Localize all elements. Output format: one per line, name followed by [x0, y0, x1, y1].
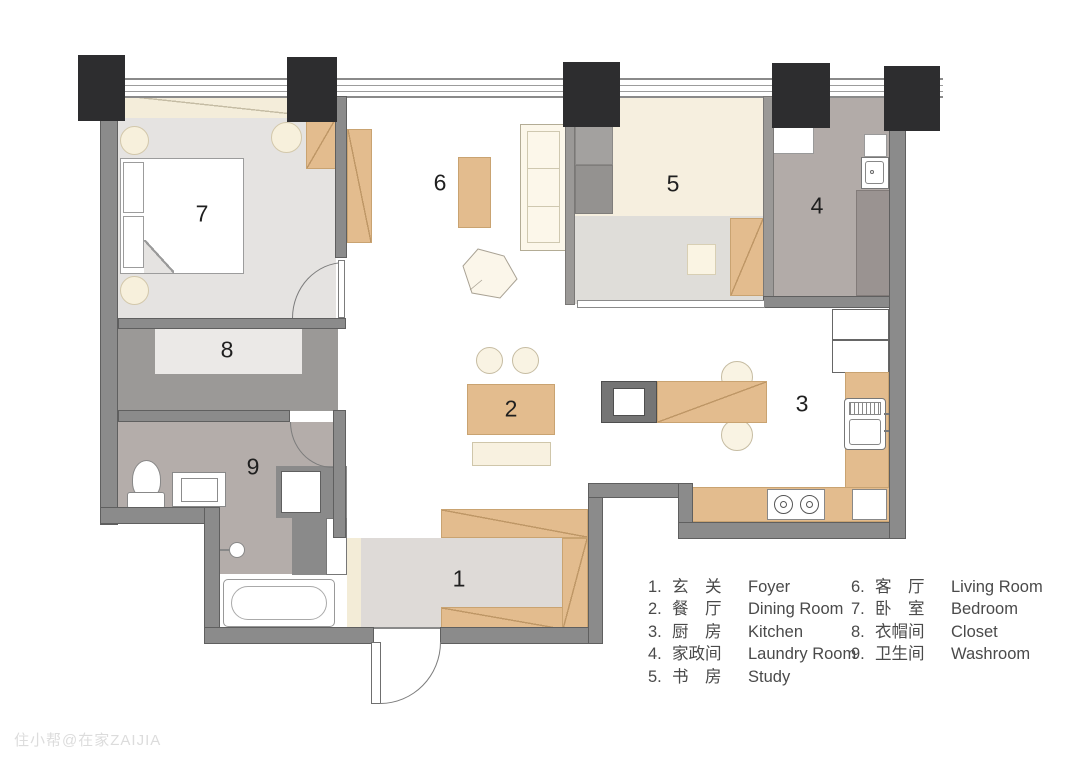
wall-kitchen-bottom [678, 522, 906, 539]
legend-num: 8. [851, 623, 875, 642]
wall-step-left [100, 507, 220, 524]
study-cabinet [575, 165, 613, 214]
legend-num: 9. [851, 645, 875, 664]
legend-zh: 卧 室 [875, 595, 947, 619]
pillow [123, 216, 144, 268]
legend-en: Foyer [748, 578, 790, 597]
legend-row: 1. 玄 关 Foyer [648, 573, 856, 595]
study-desk [730, 218, 764, 296]
wall-left [100, 96, 118, 525]
column [78, 55, 125, 121]
legend-num: 4. [648, 645, 672, 664]
legend-row: 9. 卫生间 Washroom [851, 640, 1043, 662]
wall-bottom-mid [440, 627, 603, 644]
legend-num: 2. [648, 600, 672, 619]
nightstand [120, 126, 149, 155]
laundry-sink [861, 157, 889, 189]
entry-door-arc [380, 642, 441, 704]
floor-plan: 1 2 3 4 5 6 7 8 9 1. 玄 关 Foyer 2. 餐 厅 Di… [0, 0, 1080, 763]
legend-num: 3. [648, 623, 672, 642]
foyer-cabinet-top [441, 509, 588, 538]
laundry-cabinet [856, 190, 890, 296]
wall-bedroom-closet [118, 318, 346, 329]
kitchen-island [657, 381, 767, 423]
legend-zh: 餐 厅 [672, 595, 744, 619]
wall-bottom-left [204, 627, 374, 644]
legend-en: Kitchen [748, 623, 803, 642]
legend-column-left: 1. 玄 关 Foyer 2. 餐 厅 Dining Room 3. 厨 房 K… [648, 573, 856, 685]
room-label-bedroom: 7 [196, 201, 209, 228]
legend-zh: 卫生间 [875, 640, 947, 664]
bedroom-wardrobe [306, 117, 337, 169]
column [772, 63, 830, 128]
sofa-divider [527, 168, 560, 169]
pillow [123, 162, 144, 213]
wall-right [889, 127, 906, 539]
room-label-study: 5 [667, 171, 680, 198]
closet-wardrobe [118, 374, 338, 411]
wall-notch-left [588, 497, 603, 644]
island-stool [721, 419, 753, 451]
wall-laundry-kitchen [763, 296, 890, 308]
column [563, 62, 620, 127]
legend-zh: 家政间 [672, 640, 744, 664]
kitchen-sink-basin [849, 419, 881, 445]
legend-num: 7. [851, 600, 875, 619]
legend-en: Living Room [951, 578, 1043, 597]
legend-en: Washroom [951, 645, 1030, 664]
sofa-divider [527, 206, 560, 207]
legend-row: 8. 衣帽间 Closet [851, 618, 1043, 640]
legend-zh: 客 厅 [875, 573, 947, 597]
floor-drain [229, 542, 245, 558]
legend-column-right: 6. 客 厅 Living Room 7. 卧 室 Bedroom 8. 衣帽间… [851, 573, 1043, 663]
legend-en: Dining Room [748, 600, 843, 619]
laundry-appliance [864, 134, 887, 157]
legend-row: 4. 家政间 Laundry Room [648, 640, 856, 662]
bathtub-inner [231, 586, 327, 620]
legend-en: Study [748, 668, 790, 687]
column [884, 66, 940, 131]
room-label-closet: 8 [221, 337, 234, 364]
room-label-dining: 2 [505, 396, 518, 423]
burner [774, 495, 793, 514]
legend-zh: 衣帽间 [875, 618, 947, 642]
burner [800, 495, 819, 514]
room-label-foyer: 1 [453, 566, 466, 593]
wall-washroom-foyer [333, 410, 346, 538]
column [287, 57, 337, 122]
legend-en: Bedroom [951, 600, 1018, 619]
legend-row: 2. 餐 厅 Dining Room [648, 595, 856, 617]
legend-row: 3. 厨 房 Kitchen [648, 618, 856, 640]
kitchen-sink-grill [849, 402, 881, 415]
legend-en: Closet [951, 623, 998, 642]
island-column-core [613, 388, 645, 416]
room-label-kitchen: 3 [796, 391, 809, 418]
legend-zh: 玄 关 [672, 573, 744, 597]
foyer-cabinet-right [562, 538, 588, 630]
dining-bench [472, 442, 551, 466]
wall-closet-washroom [118, 410, 290, 422]
foyer-threshold-strip [347, 538, 361, 627]
dining-chair [476, 347, 503, 374]
closet-cabinet-right [302, 328, 338, 374]
legend-zh: 书 房 [672, 663, 744, 687]
legend-en: Laundry Room [748, 645, 856, 664]
closet-cabinet-left [118, 328, 155, 374]
bedroom-door-leaf [338, 260, 345, 318]
coffee-table [458, 157, 491, 228]
flue-shaft [832, 309, 889, 340]
watermark: 住小帮@在家ZAIJIA [14, 729, 161, 750]
legend-zh: 厨 房 [672, 618, 744, 642]
blanket-fold [144, 240, 174, 273]
nightstand [271, 122, 302, 153]
flue-shaft [832, 340, 889, 373]
legend-row: 5. 书 房 Study [648, 663, 856, 685]
beanbag-ottoman [460, 246, 520, 300]
tv-cabinet [347, 129, 372, 243]
legend-row: 6. 客 厅 Living Room [851, 573, 1043, 595]
entry-door-sill [374, 627, 440, 629]
wall-living-study [565, 96, 575, 305]
stove [767, 489, 825, 520]
legend-num: 1. [648, 578, 672, 597]
room-label-washroom: 9 [247, 454, 260, 481]
wall-notch-top [588, 483, 692, 498]
legend-num: 5. [648, 668, 672, 687]
washing-machine [281, 471, 321, 513]
legend-num: 6. [851, 578, 875, 597]
wall-left-lower [204, 507, 220, 644]
room-label-living: 6 [434, 170, 447, 197]
vanity-basin [181, 478, 218, 502]
nightstand [120, 276, 149, 305]
corner-sink [852, 489, 887, 520]
legend-row: 7. 卧 室 Bedroom [851, 595, 1043, 617]
dining-chair [512, 347, 539, 374]
room-label-laundry: 4 [811, 193, 824, 220]
study-table [687, 244, 716, 275]
wash-cabinet [292, 518, 326, 575]
sofa-seat [527, 131, 560, 243]
sliding-door-track [577, 300, 765, 308]
